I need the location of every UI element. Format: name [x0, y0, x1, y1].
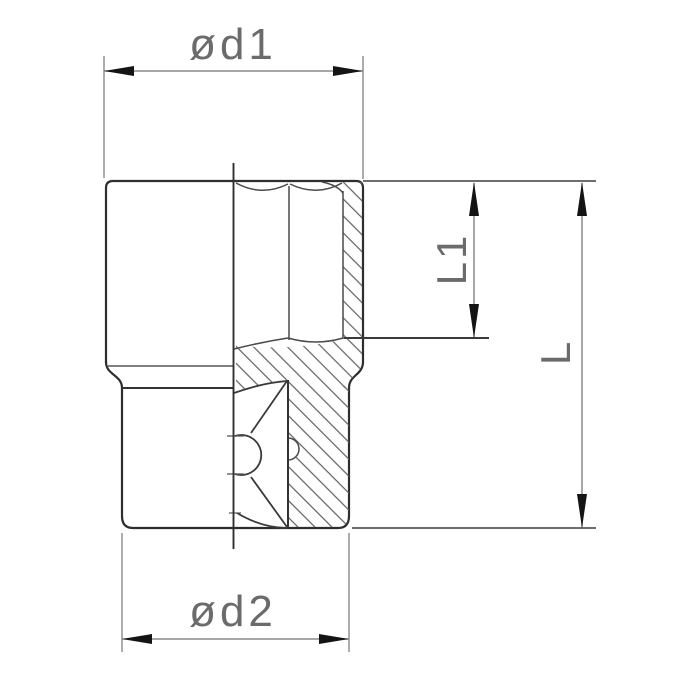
dimension-d2: ød2 — [122, 533, 349, 652]
dimension-label-l: L — [532, 339, 579, 365]
dimension-l1: L1 — [344, 181, 596, 338]
arrowhead-up — [577, 182, 587, 216]
arrowhead-down — [469, 304, 479, 338]
dimension-label-d1: ød1 — [189, 20, 277, 69]
technical-drawing-socket-section: ød1 ød2 L1 L — [0, 0, 700, 700]
drawing-canvas: ød1 ød2 L1 L — [0, 0, 700, 700]
arrowhead-left — [104, 66, 134, 76]
arrowhead-up — [469, 182, 479, 216]
dimension-label-l1: L1 — [428, 233, 475, 286]
dimension-label-d2: ød2 — [189, 587, 277, 636]
arrowhead-down — [577, 494, 587, 528]
dimension-d1: ød1 — [104, 20, 363, 179]
arrowhead-right — [333, 66, 363, 76]
arrowhead-left — [122, 634, 152, 644]
arrowhead-right — [319, 634, 349, 644]
